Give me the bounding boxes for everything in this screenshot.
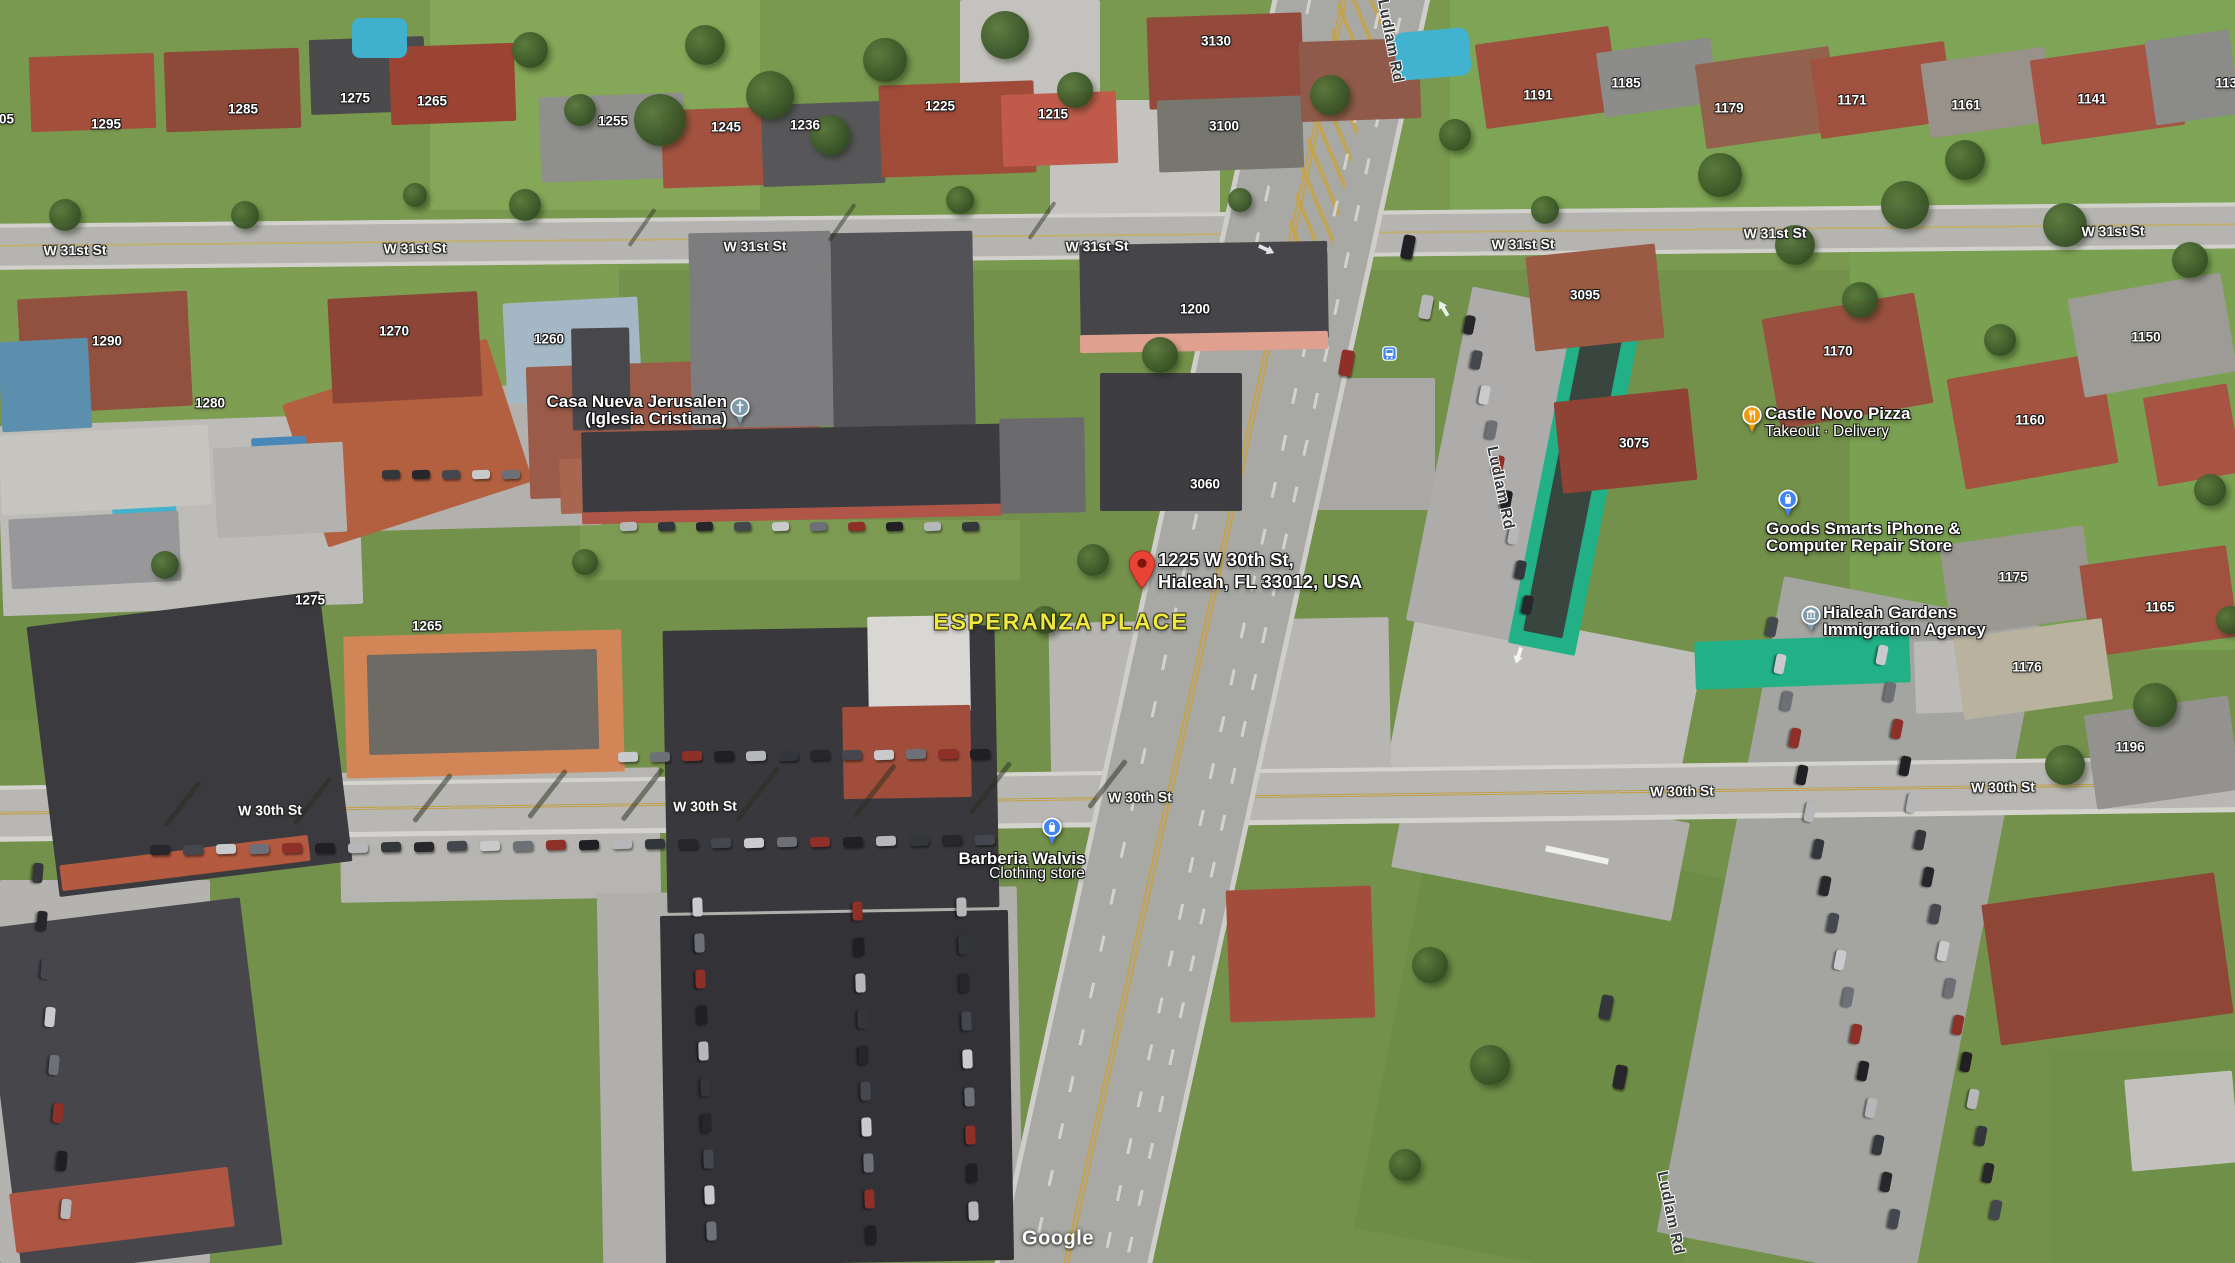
parked-car [1463,315,1476,336]
parked-car [1818,875,1832,897]
scenery-block [1100,373,1242,511]
tree [1389,1149,1421,1181]
restaurant-pin-icon[interactable] [1742,405,1762,433]
scenery-block [412,773,453,823]
parked-car [1883,681,1897,703]
house-number-label: 1255 [598,114,628,129]
parked-car [886,522,903,532]
shopping-pin-icon[interactable] [1042,817,1062,845]
scenery-block [1027,201,1056,240]
parked-car [695,969,706,988]
parked-car [282,843,302,854]
parked-car [36,911,48,932]
house-number-label: 1280 [195,396,225,411]
street-label-w31st: W 31st St [383,240,446,257]
tree [2133,683,2177,727]
parked-car [1959,1051,1973,1073]
house-number-label: 1196 [2115,740,2144,755]
institution-pin-icon[interactable] [1801,605,1821,633]
parked-car [618,752,638,763]
parked-car [909,835,929,846]
parked-car [1834,949,1848,971]
tree [2172,242,2208,278]
parked-car [1864,1097,1878,1119]
parked-car [714,751,734,762]
parked-car [216,844,236,855]
address-line-1: 1225 W 30th St, [1158,549,1362,571]
parked-car [1849,1023,1863,1045]
scenery-block [367,649,600,755]
parked-car [968,1201,979,1220]
house-number-label: 1179 [1714,101,1743,116]
parked-car [778,750,798,761]
parked-car [858,1045,869,1064]
house-number-label: 1275 [340,91,370,106]
tree [1077,544,1109,576]
parked-car [1418,294,1434,320]
street-label-w31st: W 31st St [1065,238,1128,255]
scenery-block [2124,1070,2235,1171]
parked-car [579,839,599,850]
parked-car [412,470,430,480]
house-number-label: 1265 [417,94,447,109]
poi-name-hialeah-gardens[interactable]: Immigration Agency [1823,620,1986,640]
house-number-label: 1165 [2145,600,2174,615]
parked-car [472,470,490,480]
parked-car [698,1041,709,1060]
tree [946,186,974,214]
tree [1984,324,2016,356]
house-number-label: 1225 [925,99,955,114]
street-label-w30th: W 30th St [1650,783,1714,800]
parked-car [382,470,400,480]
parked-car [1989,1199,2003,1221]
parked-car [1974,1125,1988,1147]
shopping-pin-icon[interactable] [1778,489,1798,517]
tree [509,189,541,221]
tree [1228,188,1252,212]
tree [2194,474,2226,506]
parked-car [956,897,967,916]
parked-car [975,835,995,846]
parked-car [40,959,52,980]
tree [512,32,548,68]
scenery-block [999,417,1086,513]
parked-car [1803,801,1817,823]
parked-car [863,1153,874,1172]
house-number-label: 1191 [1523,88,1552,103]
tree [634,94,686,146]
house-number-label: 1305 [0,112,14,127]
street-label-w30th: W 30th St [238,802,302,819]
parked-car [777,837,797,848]
parked-car [1485,420,1498,441]
tree [1412,947,1448,983]
parked-car [447,841,467,852]
scenery-block [213,442,348,539]
house-number-label: 3100 [1209,119,1239,134]
parked-car [866,1225,877,1244]
house-number-label: 1236 [790,118,820,133]
parked-car [414,841,434,852]
tree [49,199,81,231]
poi-subtitle: Takeout · Delivery [1765,423,1889,441]
street-label-w31st: W 31st St [723,238,786,255]
house-number-label: 1171 [1837,93,1866,108]
tree [564,94,596,126]
parked-car [52,1103,64,1124]
parked-car [1400,234,1416,260]
parked-car [658,522,675,532]
poi-name-goods-smarts[interactable]: Computer Repair Store [1766,536,1952,556]
street-label-w31st: W 31st St [43,242,106,259]
house-number-label: 3130 [1201,34,1231,49]
parked-car [697,1005,708,1024]
bus-stop-icon[interactable] [1382,346,1397,361]
parked-car [703,1149,714,1168]
house-number-label: 3075 [1619,436,1649,451]
scenery-block [352,18,407,58]
parked-car [48,1055,60,1076]
house-number-label: 1185 [1611,76,1640,91]
parked-car [546,840,566,851]
tree [1310,75,1350,115]
house-number-label: 1175 [1998,570,2027,585]
address-line-2: Hialeah, FL 33012, USA [1158,571,1362,593]
scenery-block [8,511,181,590]
parked-car [56,1151,68,1172]
parked-car [348,842,368,853]
parked-car [1612,1064,1628,1090]
parked-car [696,522,713,532]
parked-car [1879,1171,1893,1193]
house-number-label: 1161 [1951,98,1980,113]
parked-car [1898,755,1912,777]
house-number-label: 1245 [711,120,741,135]
parked-car [700,1077,711,1096]
parked-car [861,1117,872,1136]
tree [1439,119,1471,151]
area-label-esperanza-place[interactable]: ESPERANZA PLACE [933,609,1188,636]
house-number-label: 3060 [1190,477,1220,492]
house-number-label: 1131 [2215,76,2235,91]
parked-car [1780,690,1794,712]
parked-car [249,843,269,854]
parked-car [1982,1162,1996,1184]
house-number-label: 1215 [1038,107,1068,122]
google-watermark[interactable]: Google [1022,1228,1094,1251]
parked-car [744,837,764,848]
parked-car [942,835,962,846]
parked-car [734,522,751,532]
parked-car [1906,792,1920,814]
parked-car [150,845,170,856]
scenery-block [0,425,212,516]
tree [572,549,598,575]
scenery-block [660,910,1014,1263]
parked-car [678,838,698,849]
tree [746,71,794,119]
street-label-w30th: W 30th St [673,798,737,815]
scenery-block [1146,12,1304,109]
parked-car [959,973,970,992]
tree [685,25,725,65]
parked-car [810,522,827,532]
house-number-label: 1275 [295,593,325,608]
parked-car [924,522,941,532]
poi-name-casa-nueva[interactable]: (Iglesia Cristiana) [585,409,727,429]
parked-car [864,1189,875,1208]
parked-car [843,836,863,847]
street-label-w30th: W 30th St [1108,789,1172,806]
poi-subtitle: Clothing store [989,865,1085,883]
scenery-block [1475,26,1621,129]
church-pin-icon[interactable] [730,397,750,425]
parked-car [692,897,703,916]
parked-car [967,1163,978,1182]
tree [1842,282,1878,318]
tree [1057,72,1093,108]
house-number-label: 1265 [412,619,442,634]
house-number-label: 1170 [1823,344,1852,359]
house-number-label: 1260 [534,332,564,347]
parked-car [183,844,203,855]
scenery-block [527,769,568,819]
marker-address-label[interactable]: 1225 W 30th St, Hialeah, FL 33012, USA [1158,549,1362,593]
tree [1698,153,1742,197]
parked-car [44,1007,56,1028]
house-number-label: 1285 [228,102,258,117]
house-number-label: 1200 [1180,302,1210,317]
parked-car [1788,727,1802,749]
parked-car [874,749,894,760]
parked-car [848,522,865,532]
scenery-block [1226,886,1376,1023]
parked-car [60,1199,72,1220]
house-number-label: 1290 [92,334,122,349]
tree [151,551,179,579]
parked-car [1477,385,1490,406]
parked-car [1921,866,1935,888]
parked-car [876,836,896,847]
parked-car [513,840,533,851]
house-number-label: 1176 [2012,660,2041,675]
scenery-block [327,291,482,404]
parked-car [1944,977,1958,999]
tree [981,11,1029,59]
parked-car [1796,764,1810,786]
tree [1945,140,1985,180]
tree [231,201,259,229]
scenery-block [627,208,656,247]
parked-car [704,1185,715,1204]
house-number-label: 1270 [379,324,409,339]
parked-car [612,839,632,850]
parked-car [962,1049,973,1068]
house-number-label: 1295 [91,117,121,132]
tree [1470,1045,1510,1085]
parked-car [502,470,520,480]
parked-car [442,470,460,480]
parked-car [1765,616,1779,638]
parked-car [711,838,731,849]
parked-car [772,522,789,532]
parked-car [810,750,830,761]
parked-car [1966,1088,1980,1110]
parked-car [961,1011,972,1030]
street-label-w30th: W 30th St [1971,779,2035,796]
parked-car [1928,903,1942,925]
street-label-w31st: W 31st St [1491,236,1554,253]
parked-car [1598,994,1614,1020]
parked-car [706,1221,717,1240]
parked-car [645,839,665,850]
house-number-label: 1141 [2077,92,2106,107]
scenery-block [1001,91,1118,167]
house-number-label: 1150 [2131,330,2160,345]
parked-car [958,935,969,954]
parked-car [1913,829,1927,851]
scenery-block [1981,872,2233,1045]
parked-car [650,751,670,762]
parked-car [964,1087,975,1106]
tree [403,183,427,207]
parked-car [620,522,637,532]
tree [2045,745,2085,785]
parked-car [1338,349,1355,377]
scenery-block [830,231,975,428]
parked-car [1470,350,1483,371]
tree [1881,181,1929,229]
parked-car [965,1125,976,1144]
parked-car [1856,1060,1870,1082]
parked-car [682,751,702,762]
parked-car [746,750,766,761]
parked-car [701,1113,712,1132]
parked-car [381,842,401,853]
scenery-block [389,43,517,125]
parked-car [855,973,866,992]
parked-car [1936,940,1950,962]
parked-car [860,1081,871,1100]
scenery-block [2143,383,2235,486]
scenery-block [1079,241,1329,342]
satellite-map[interactable]: 1305 1295 1285 1275 1265 1255 1245 1236 … [0,0,2235,1263]
parked-car [32,863,44,884]
parked-car [906,749,926,760]
parked-car [962,522,979,532]
parked-car [694,933,705,952]
parked-car [315,843,335,854]
scenery-block [1157,95,1304,172]
parked-car [938,749,958,760]
parked-car [1841,986,1855,1008]
tree [2043,203,2087,247]
poi-name-castle-novo-pizza[interactable]: Castle Novo Pizza [1765,404,1911,424]
parked-car [1811,838,1825,860]
tree [863,38,907,82]
parked-car [842,750,862,761]
scenery-block [1080,331,1328,353]
scenery-block [621,767,665,821]
parked-car [857,1009,868,1028]
parked-car [970,748,990,759]
parked-car [1890,718,1904,740]
scenery-block [164,48,302,133]
parked-car [1887,1208,1901,1230]
parked-car [810,837,830,848]
house-number-label: 1160 [2015,413,2044,428]
street-label-w31st: W 31st St [2081,223,2144,240]
house-number-label: 3095 [1570,288,1600,303]
scenery-block [0,338,92,433]
parked-car [1872,1134,1886,1156]
tree [1531,196,1559,224]
tree [1142,337,1178,373]
parked-car [854,937,865,956]
parked-car [480,841,500,852]
street-label-w31st: W 31st St [1743,225,1806,242]
parked-car [1951,1014,1965,1036]
parked-car [1826,912,1840,934]
destination-marker-pin-icon[interactable] [1129,550,1156,589]
parked-car [852,901,863,920]
